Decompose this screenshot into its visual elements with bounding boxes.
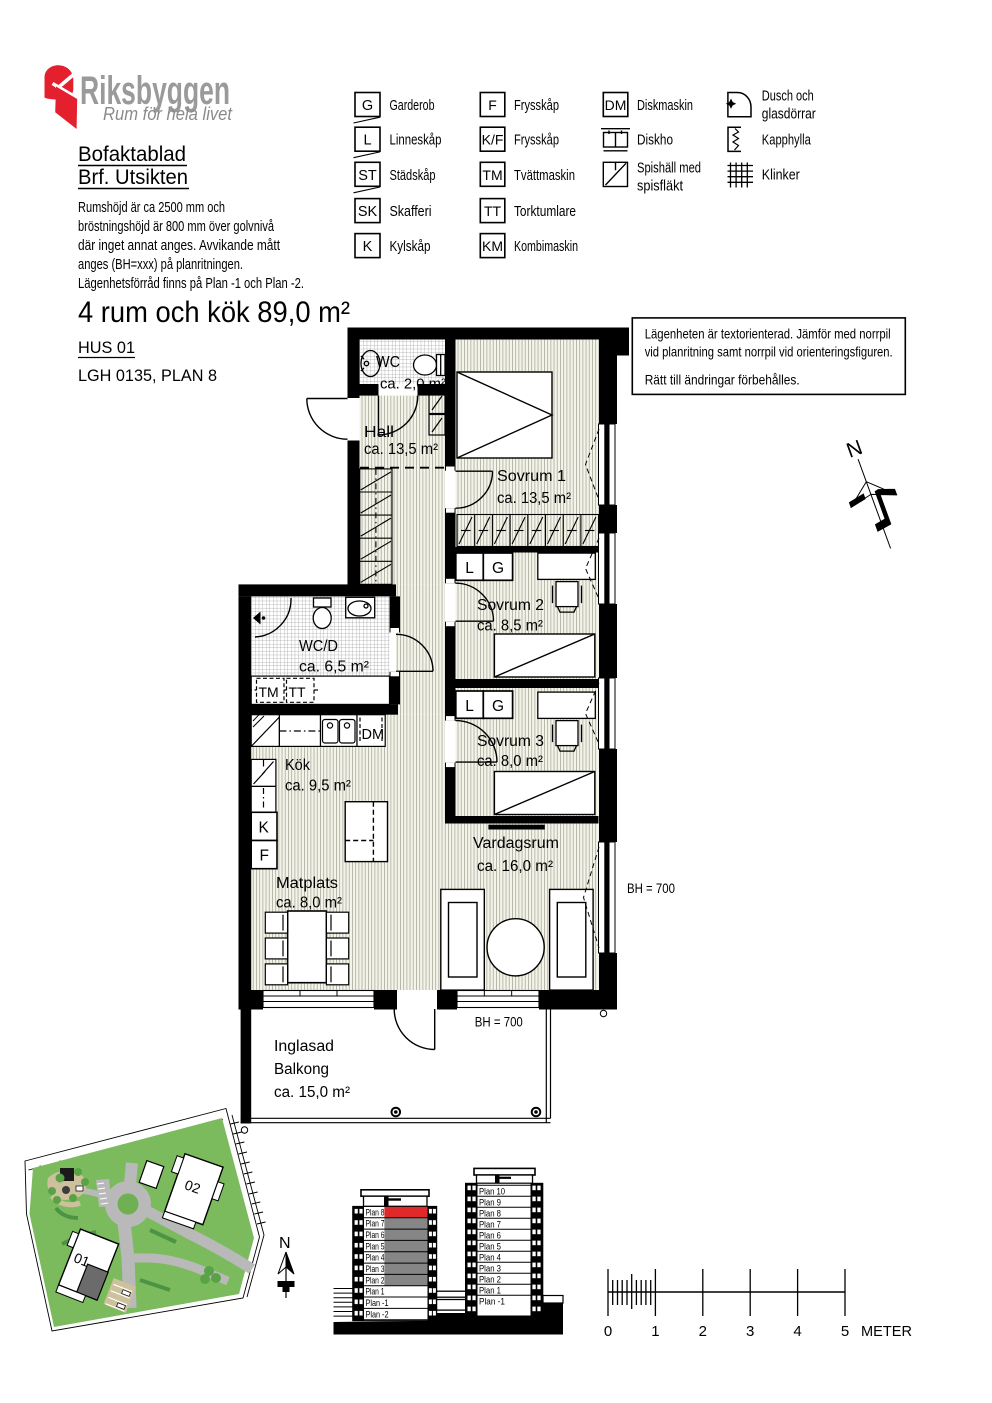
svg-text:Frysskåp: Frysskåp [514, 133, 559, 149]
svg-text:Diskho: Diskho [637, 133, 673, 149]
svg-text:Plan -1: Plan -1 [366, 1298, 389, 1308]
svg-text:Frysskåp: Frysskåp [514, 98, 559, 114]
svg-text:WC/D: WC/D [299, 638, 338, 655]
svg-text:4 rum och kök 89,0 m²: 4 rum och kök 89,0 m² [78, 296, 350, 329]
svg-text:K/F: K/F [482, 132, 504, 148]
svg-text:anges (BH=xxx) på planritninge: anges (BH=xxx) på planritningen. [78, 256, 243, 273]
svg-text:Rumshöjd är ca 2500 mm och: Rumshöjd är ca 2500 mm och [78, 199, 225, 216]
svg-text:BH = 700: BH = 700 [627, 881, 675, 896]
svg-text:Plan 2: Plan 2 [479, 1274, 501, 1284]
svg-text:L: L [363, 133, 371, 149]
svg-text:2: 2 [699, 1323, 707, 1340]
svg-text:TM: TM [259, 684, 279, 700]
svg-text:ca. 16,0 m²: ca. 16,0 m² [477, 858, 553, 875]
svg-text:TM: TM [482, 167, 502, 183]
svg-text:Plan 1: Plan 1 [479, 1285, 501, 1295]
svg-text:K: K [259, 820, 270, 837]
svg-text:3: 3 [746, 1323, 754, 1340]
svg-text:LGH 0135, PLAN 8: LGH 0135, PLAN 8 [78, 366, 217, 385]
svg-text:Plan -2: Plan -2 [366, 1309, 389, 1319]
svg-text:SK: SK [358, 204, 378, 220]
svg-text:ST: ST [358, 168, 377, 184]
svg-text:glasdörrar: glasdörrar [762, 107, 816, 123]
svg-text:Klinker: Klinker [762, 168, 800, 184]
svg-text:ca. 13,5 m²: ca. 13,5 m² [497, 490, 571, 507]
svg-text:Plan 10: Plan 10 [479, 1186, 505, 1196]
svg-text:L: L [465, 698, 474, 715]
svg-text:Dusch och: Dusch och [762, 89, 814, 105]
svg-text:Balkong: Balkong [274, 1061, 329, 1078]
svg-text:WC: WC [376, 354, 400, 371]
svg-text:0: 0 [604, 1323, 612, 1340]
svg-text:TT: TT [289, 684, 307, 700]
svg-text:1: 1 [651, 1323, 659, 1340]
svg-text:Plan 4: Plan 4 [479, 1252, 501, 1262]
svg-text:Kombimaskin: Kombimaskin [514, 239, 578, 255]
svg-text:G: G [492, 560, 504, 577]
svg-text:L: L [465, 560, 474, 577]
svg-text:Plan 2: Plan 2 [366, 1275, 385, 1285]
svg-text:Kök: Kök [285, 757, 310, 774]
svg-text:ca. 9,5 m²: ca. 9,5 m² [285, 778, 351, 795]
svg-text:Bofaktablad: Bofaktablad [78, 143, 186, 166]
svg-text:ca. 8,0 m²: ca. 8,0 m² [477, 753, 543, 770]
svg-text:Vardagsrum: Vardagsrum [473, 835, 559, 852]
svg-text:Plan 5: Plan 5 [479, 1241, 501, 1251]
svg-text:DM: DM [362, 727, 385, 743]
svg-text:Garderob: Garderob [390, 98, 435, 114]
svg-text:Linneskåp: Linneskåp [390, 133, 442, 149]
svg-text:där inget annat anges. Avvikan: där inget annat anges. Avvikande mått [78, 237, 281, 254]
svg-text:F: F [260, 848, 269, 865]
svg-text:Plan -1: Plan -1 [479, 1296, 505, 1306]
svg-text:Plan 9: Plan 9 [479, 1197, 501, 1207]
svg-text:K: K [363, 239, 373, 255]
svg-text:Sovrum 3: Sovrum 3 [477, 733, 544, 750]
svg-text:Plan 4: Plan 4 [366, 1253, 385, 1263]
svg-text:Spishäll med: Spishäll med [637, 161, 701, 177]
svg-text:G: G [362, 98, 373, 114]
svg-text:Kylskåp: Kylskåp [390, 239, 431, 255]
svg-text:Sovrum 2: Sovrum 2 [477, 597, 544, 614]
svg-text:BH = 700: BH = 700 [475, 1015, 523, 1030]
svg-text:G: G [492, 698, 504, 715]
svg-text:bröstningshöjd är 800 mm över: bröstningshöjd är 800 mm över golvnivå [78, 218, 274, 235]
svg-text:ca. 6,5 m²: ca. 6,5 m² [299, 659, 369, 676]
svg-text:TT: TT [484, 203, 502, 219]
svg-text:Inglasad: Inglasad [274, 1038, 334, 1055]
svg-text:Rätt till ändringar förbehålle: Rätt till ändringar förbehålles. [645, 372, 800, 388]
svg-text:DM: DM [605, 97, 627, 113]
svg-text:Plan 6: Plan 6 [366, 1230, 385, 1240]
svg-text:Diskmaskin: Diskmaskin [637, 98, 693, 114]
svg-text:Plan 1: Plan 1 [366, 1287, 385, 1297]
svg-text:Plan 3: Plan 3 [479, 1263, 501, 1273]
svg-text:Plan 8: Plan 8 [479, 1208, 501, 1218]
svg-text:Torktumlare: Torktumlare [514, 204, 576, 220]
svg-text:Hall: Hall [364, 424, 394, 441]
svg-text:4: 4 [793, 1323, 801, 1340]
svg-text:Plan 5: Plan 5 [366, 1241, 385, 1251]
svg-text:Kapphylla: Kapphylla [762, 133, 812, 149]
svg-text:ca. 8,5 m²: ca. 8,5 m² [477, 618, 543, 635]
svg-text:Plan 7: Plan 7 [479, 1219, 501, 1229]
svg-text:Skafferi: Skafferi [390, 204, 432, 220]
svg-text:Plan 7: Plan 7 [366, 1219, 385, 1229]
svg-text:Lägenhetsförråd finns på Plan: Lägenhetsförråd finns på Plan -1 och Pla… [78, 275, 304, 292]
svg-text:KM: KM [482, 238, 503, 254]
svg-text:ca. 2,0 m²: ca. 2,0 m² [380, 377, 446, 393]
svg-text:5: 5 [841, 1323, 849, 1340]
svg-text:Lägenheten är textorienterad.: Lägenheten är textorienterad. Jämför med… [645, 326, 891, 342]
svg-text:Städskåp: Städskåp [390, 168, 436, 184]
svg-text:N: N [279, 1235, 291, 1252]
svg-text:Tvättmaskin: Tvättmaskin [514, 168, 575, 184]
svg-text:Brf. Utsikten: Brf. Utsikten [78, 166, 188, 189]
svg-text:F: F [488, 97, 497, 113]
svg-text:Rum för hela livet: Rum för hela livet [103, 104, 233, 124]
svg-text:Plan 3: Plan 3 [366, 1264, 385, 1274]
svg-text:Sovrum 1: Sovrum 1 [497, 468, 566, 485]
svg-text:spisfläkt: spisfläkt [637, 179, 683, 195]
svg-text:vid planritning samt norrpil v: vid planritning samt norrpil vid oriente… [645, 344, 893, 360]
svg-text:Matplats: Matplats [276, 875, 338, 892]
svg-text:Plan 8: Plan 8 [366, 1207, 385, 1217]
svg-text:HUS 01: HUS 01 [78, 338, 135, 357]
svg-text:ca. 15,0 m²: ca. 15,0 m² [274, 1084, 350, 1101]
svg-text:Plan 6: Plan 6 [479, 1230, 501, 1240]
svg-text:METER: METER [861, 1323, 912, 1340]
svg-text:ca. 13,5 m²: ca. 13,5 m² [364, 441, 438, 458]
svg-text:ca. 8,0 m²: ca. 8,0 m² [276, 895, 342, 912]
